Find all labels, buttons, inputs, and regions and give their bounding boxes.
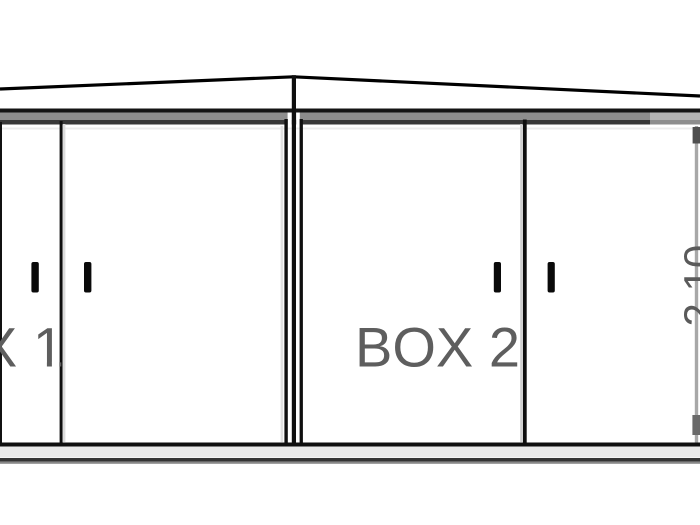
svg-text:2.10: 2.10 (675, 245, 700, 327)
svg-text:BOX 2: BOX 2 (355, 316, 520, 379)
svg-text:BOX 1: BOX 1 (0, 316, 64, 379)
